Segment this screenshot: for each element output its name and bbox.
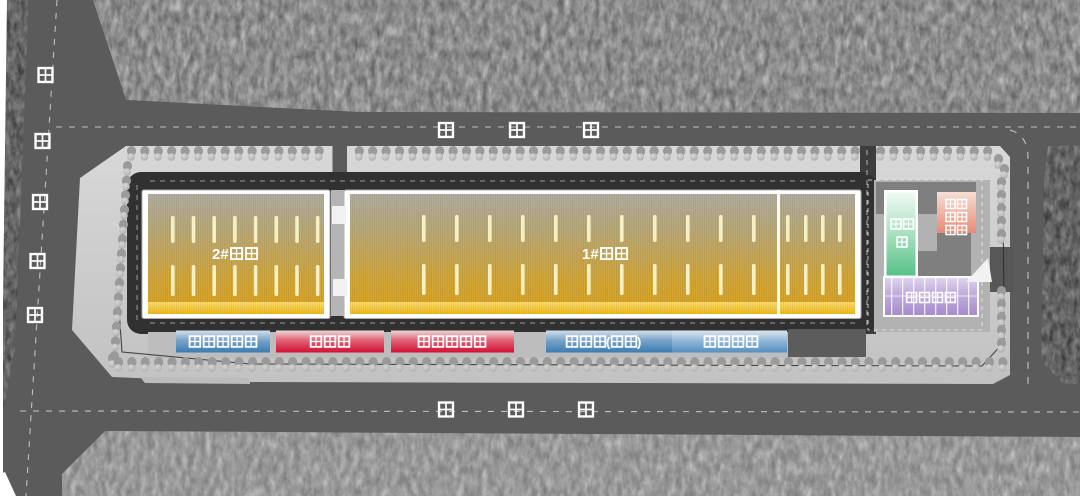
svg-text:2#: 2# xyxy=(212,246,229,263)
svg-text:): ) xyxy=(637,335,641,350)
svg-text:(: ( xyxy=(606,335,611,350)
svg-text:1#: 1# xyxy=(582,246,599,263)
